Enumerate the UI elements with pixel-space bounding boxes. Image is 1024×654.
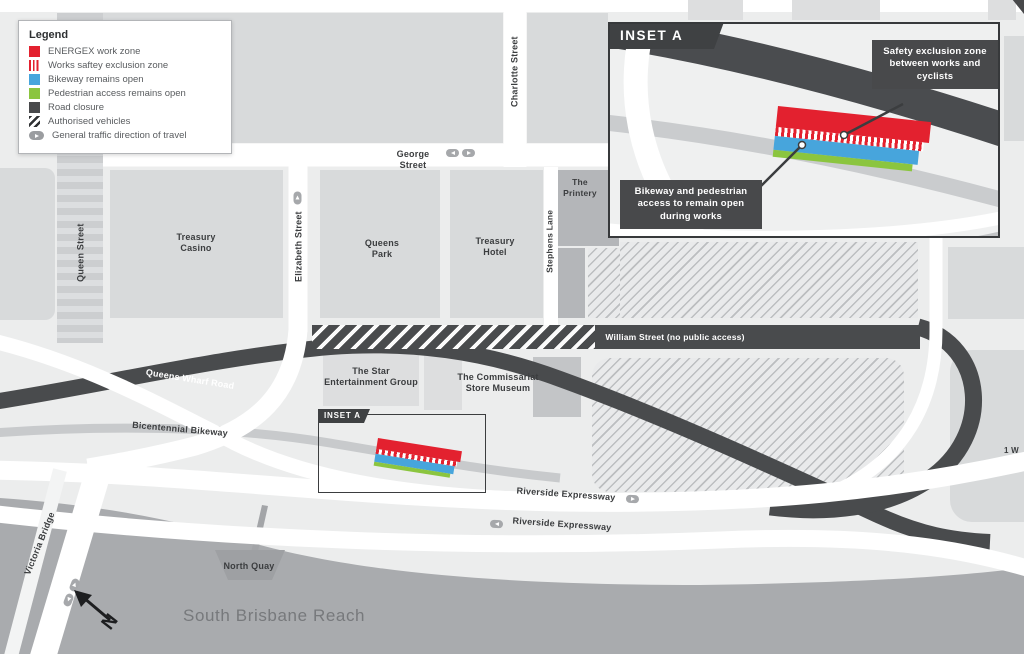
- stephens-lane-label: Stephens Lane: [545, 196, 556, 286]
- legend-panel: Legend ENERGEX work zone Works saftey ex…: [18, 20, 232, 154]
- legend-item-label: General traffic direction of travel: [52, 130, 186, 141]
- inset-map-tag: INSET A: [318, 409, 370, 423]
- arrow-left-icon: [451, 151, 455, 155]
- legend-item: Road closure: [29, 102, 221, 113]
- legend-item-label: Works saftey exclusion zone: [48, 60, 168, 71]
- arrow-left-icon: [494, 522, 498, 526]
- traffic-direction-icon: [294, 192, 302, 205]
- north-quay-label: North Quay: [206, 561, 292, 572]
- legend-item-label: Bikeway remains open: [48, 74, 144, 85]
- compass-arrow-head: [74, 590, 92, 607]
- arrow-icon: [296, 196, 300, 200]
- worksite-map: William Street (no public access) George…: [0, 0, 1024, 654]
- traffic-direction-icon: [446, 149, 459, 157]
- bikeway-access-callout: Bikeway and pedestrian access to remain …: [620, 180, 762, 229]
- commissariat-label: The Commissariat Store Museum: [438, 372, 558, 395]
- legend-item-label: ENERGEX work zone: [48, 46, 140, 57]
- traffic-direction-icon: [462, 149, 475, 157]
- legend-item: ENERGEX work zone: [29, 46, 221, 57]
- arrow-right-icon: [467, 151, 471, 155]
- arrow-right-icon: [630, 497, 634, 501]
- legend-item: Bikeway remains open: [29, 74, 221, 85]
- authorised-vehicles-swatch: [29, 116, 40, 127]
- legend-item: Works saftey exclusion zone: [29, 60, 221, 71]
- legend-item-label: Pedestrian access remains open: [48, 88, 186, 99]
- road-closure-swatch: [29, 102, 40, 113]
- arrow-right-icon: [35, 134, 39, 138]
- safety-exclusion-callout: Safety exclusion zone between works and …: [872, 40, 998, 89]
- work-zone-swatch: [29, 46, 40, 57]
- queen-street-label: Queen Street: [75, 208, 86, 298]
- traffic-direction-swatch: [29, 131, 44, 140]
- elizabeth-street-label: Elizabeth Street: [293, 202, 304, 292]
- star-entertainment-label: The Star Entertainment Group: [311, 366, 431, 389]
- legend-item-label: Authorised vehicles: [48, 116, 130, 127]
- pedestrian-swatch: [29, 88, 40, 99]
- bikeway-swatch: [29, 74, 40, 85]
- traffic-direction-icon: [490, 520, 504, 529]
- william-street-label: William Street (no public access): [540, 332, 810, 343]
- legend-item: Authorised vehicles: [29, 116, 221, 127]
- legend-item-label: Road closure: [48, 102, 104, 113]
- legend-item: Pedestrian access remains open: [29, 88, 221, 99]
- exclusion-zone-swatch: [29, 60, 40, 71]
- traffic-direction-icon: [626, 495, 640, 504]
- north-compass: N: [62, 586, 132, 638]
- george-street-label: George Street: [383, 149, 443, 172]
- legend-item: General traffic direction of travel: [29, 130, 221, 141]
- charlotte-street-label: Charlotte Street: [509, 27, 520, 117]
- river-name-label: South Brisbane Reach: [183, 606, 365, 626]
- side-street-road: [842, 236, 936, 488]
- one-william-label: 1 W: [1004, 446, 1024, 456]
- legend-title: Legend: [29, 29, 221, 41]
- inset-title-tag: INSET A: [608, 22, 724, 49]
- inset-detail-panel: INSET A Safety exclusion zone between wo…: [608, 22, 1000, 238]
